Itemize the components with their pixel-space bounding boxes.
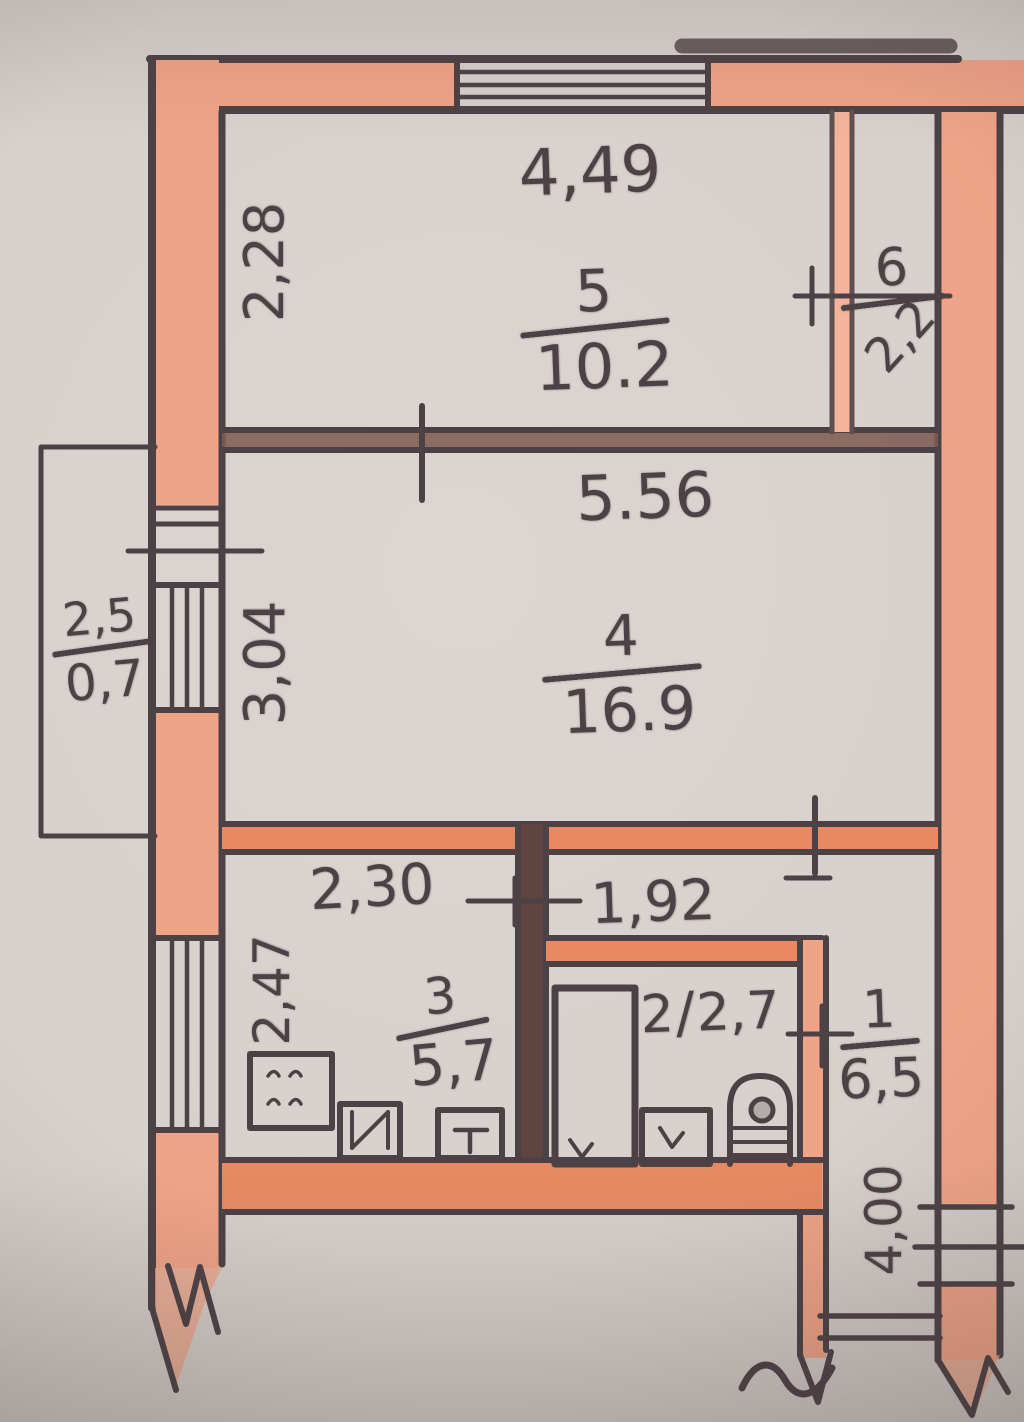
wall-bathroom-top [546,938,822,966]
room-number: 1 [861,983,896,1036]
room4-label: 4 16.9 [540,606,705,744]
bathtub-icon [555,988,635,1164]
balcony-width: 2,5 [61,591,138,643]
room3-label: 3 5,7 [390,967,495,1097]
room-area: 16.9 [561,678,697,743]
room-number: 6 [873,241,909,295]
dim-room3-width: 2,30 [308,857,435,919]
room6-label: 6 2,2 [838,239,949,360]
left-window-upper-icon [155,585,222,710]
room-number: 2 [640,988,675,1041]
counter-icon [438,1110,502,1158]
room5-label: 5 10.2 [518,259,673,400]
wall-kitchen-bathroom [518,824,546,1160]
washbasin-icon [642,1110,710,1164]
room-area: 6,5 [837,1050,925,1107]
tilde-break-mark [742,1365,832,1394]
room2-label: 2 / 2,7 [640,983,781,1044]
dim-room3-depth: 2,47 [247,934,297,1045]
room-number: 3 [422,970,458,1023]
dim-room5-width: 4,49 [518,138,663,207]
dim-room5-depth: 2,28 [238,202,292,322]
floor-plan-photo: 4,49 2,28 5 10.2 6 2,2 5.56 3,04 4 16.9 … [0,0,1024,1422]
sink-icon [340,1104,400,1158]
dim-room4-depth: 3,04 [238,601,294,726]
right-wall-break-icon [938,1355,1008,1415]
bottom-window-icon [820,1316,940,1338]
room-number: 5 [574,261,613,320]
balcony-depth: 0,7 [63,653,147,710]
fraction-slash: / [675,986,696,1043]
room-area: 2,7 [696,985,780,1040]
wall-bottom [222,1160,822,1212]
right-wall-window-icon [915,1207,1024,1284]
dim-hall-depth: 4,00 [859,1164,909,1275]
room1-label: 1 6,5 [835,983,925,1108]
room-number: 4 [602,608,640,665]
toilet-icon [730,1076,790,1164]
dim-room2-width: 1,92 [590,873,717,933]
right-wall [938,112,1000,1360]
left-wall-break-icon [152,1266,222,1390]
top-wall [150,46,1024,110]
dim-room4-width: 5.56 [575,464,715,531]
balcony-label: 2,5 0,7 [47,590,156,710]
left-window-lower-icon [155,938,222,1130]
stove-icon [250,1054,332,1128]
room-area: 5,7 [407,1032,501,1096]
room-area: 10.2 [534,333,674,400]
